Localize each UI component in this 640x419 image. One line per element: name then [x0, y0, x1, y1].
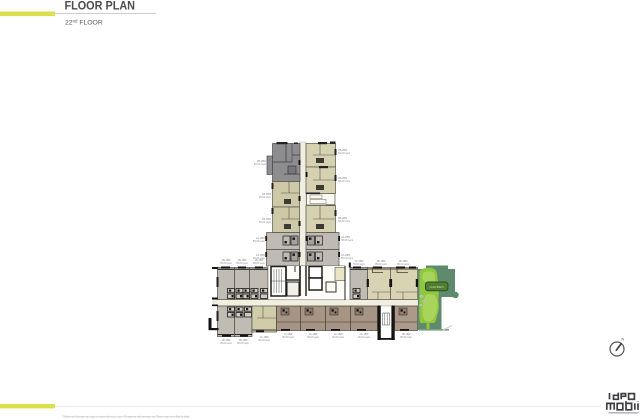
svg-text:22nd FLOOR: 22nd FLOOR — [65, 19, 103, 27]
svg-text:35.00 sqm: 35.00 sqm — [397, 262, 409, 266]
svg-text:35.00 sqm: 35.00 sqm — [253, 261, 265, 265]
svg-text:60.00 sqm: 60.00 sqm — [338, 179, 350, 183]
svg-text:* All plans and information ar: * All plans and information are subject … — [62, 415, 190, 419]
svg-text:30.00 sqm: 30.00 sqm — [258, 338, 270, 342]
svg-text:35.00 sqm: 35.00 sqm — [259, 195, 271, 199]
svg-text:60.00 sqm: 60.00 sqm — [338, 219, 350, 223]
svg-text:35.00 sqm: 35.00 sqm — [400, 335, 412, 339]
svg-text:55.00 sqm: 55.00 sqm — [341, 256, 353, 260]
svg-text:35.00 sqm: 35.00 sqm — [236, 261, 248, 265]
svg-text:55.00 sqm: 55.00 sqm — [353, 262, 365, 266]
svg-text:35.00 sqm: 35.00 sqm — [375, 262, 387, 266]
svg-text:35.00 sqm: 35.00 sqm — [220, 341, 232, 345]
svg-text:30.00 sqm: 30.00 sqm — [332, 335, 344, 339]
svg-text:35.00 sqm: 35.00 sqm — [237, 341, 249, 345]
svg-text:30.00 sqm: 30.00 sqm — [282, 335, 294, 339]
svg-text:GARDEN: GARDEN — [430, 285, 444, 289]
svg-text:N: N — [622, 338, 625, 342]
svg-text:FLOOR PLAN: FLOOR PLAN — [65, 0, 136, 13]
svg-text:35.00 sqm: 35.00 sqm — [220, 261, 232, 265]
svg-text:35.00 sqm: 35.00 sqm — [259, 220, 271, 224]
svg-text:55.00 sqm: 55.00 sqm — [341, 238, 353, 242]
svg-text:55.00 sqm: 55.00 sqm — [253, 239, 265, 243]
svg-text:60.00 sqm: 60.00 sqm — [338, 151, 350, 155]
svg-text:30.00 sqm: 30.00 sqm — [307, 335, 319, 339]
svg-text:60.00 sqm: 60.00 sqm — [254, 162, 266, 166]
svg-text:30.00 sqm: 30.00 sqm — [358, 335, 370, 339]
